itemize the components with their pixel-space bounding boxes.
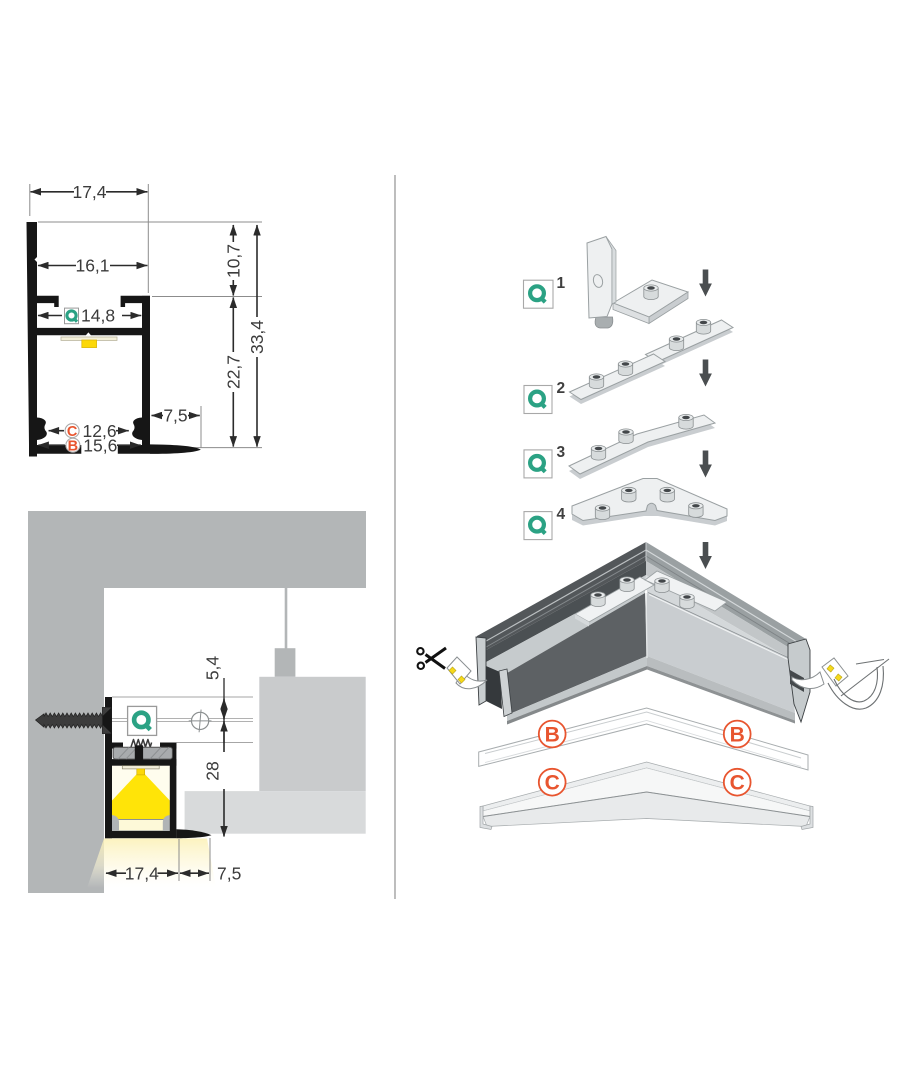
svg-text:1: 1	[557, 275, 566, 292]
svg-text:3: 3	[557, 444, 566, 461]
svg-text:B: B	[730, 724, 745, 747]
svg-text:C: C	[545, 772, 560, 795]
svg-text:4: 4	[557, 506, 566, 523]
svg-text:10,7: 10,7	[224, 244, 244, 278]
svg-text:17,4: 17,4	[125, 863, 159, 883]
svg-text:17,4: 17,4	[72, 182, 106, 202]
svg-text:2: 2	[557, 380, 566, 397]
svg-text:15,6: 15,6	[83, 435, 117, 455]
svg-text:5,4: 5,4	[203, 656, 223, 681]
svg-text:14,8: 14,8	[81, 306, 115, 326]
svg-text:16,1: 16,1	[75, 256, 109, 276]
svg-text:B: B	[545, 724, 560, 747]
svg-text:C: C	[730, 772, 745, 795]
svg-text:33,4: 33,4	[247, 320, 267, 354]
svg-text:7,5: 7,5	[163, 406, 187, 426]
svg-text:28: 28	[203, 761, 223, 780]
svg-text:7,5: 7,5	[217, 863, 241, 883]
svg-text:22,7: 22,7	[224, 355, 244, 389]
svg-text:B: B	[68, 438, 78, 454]
